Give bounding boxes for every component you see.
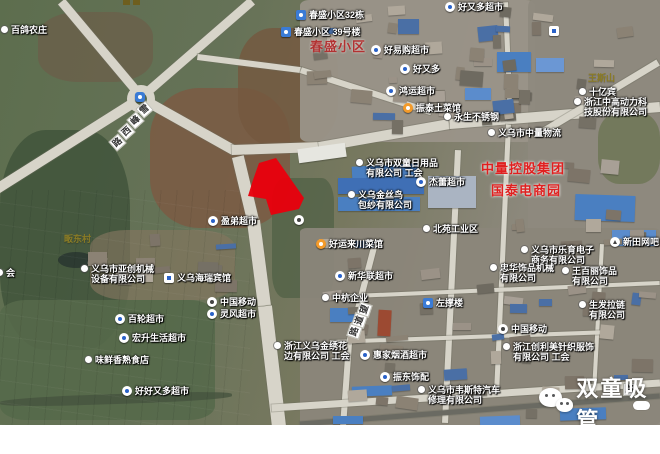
building-icon <box>281 27 291 37</box>
map-poi-label: 生发拉链有限公司 <box>579 300 625 320</box>
poi-label-text: 浙江创利美针织服饰有限公司 工会 <box>513 342 594 362</box>
poi-dot-icon <box>490 264 497 271</box>
poi-label-text: 义乌市韦斯特汽车修理有限公司 <box>428 385 500 405</box>
poi-label-text: 味鲜香熟食店 <box>95 355 149 365</box>
poi-dot-icon <box>0 269 3 276</box>
poi-dot-icon <box>503 343 510 350</box>
map-poi-label: 义乌金丝鸟包纱有限公司 <box>348 190 412 210</box>
poi-label-text: 永生不锈钢 <box>454 112 499 122</box>
poi-label-text: 好易购超市 <box>384 45 429 55</box>
map-poi-label: 春盛小区 <box>310 42 366 52</box>
poi-label-text: 义乌海瑞宾馆 <box>177 273 231 283</box>
poi-label-text: 十亿宾 <box>589 87 616 97</box>
map-poi-label: 浙江中高动力科技股份有限公司 <box>574 97 647 117</box>
poi-label-text: 中国移动 <box>220 297 256 307</box>
poi-dot-icon <box>274 342 281 349</box>
poi-label-text: 浙江中高动力科技股份有限公司 <box>584 97 647 117</box>
map-poi-label: 浙江创利美针织服饰有限公司 工会 <box>503 342 594 362</box>
map-poi-label: 浙江义乌金绣花边有限公司 工会 <box>274 341 350 361</box>
clipped-village-label <box>133 0 140 5</box>
poi-dot-icon <box>579 301 586 308</box>
poi-label-text: 好好又多超市 <box>135 386 189 396</box>
poi-label-text: 新华联超市 <box>348 271 393 281</box>
poi-label-text: 义乌市乐育电子商务有限公司 <box>531 245 594 265</box>
map-poi-label: 味鲜香熟食店 <box>85 355 149 365</box>
transit-stop-icon <box>135 92 145 102</box>
map-poi-label: 鸿运超市 <box>386 86 435 96</box>
poi-label-text: 宏升生活超市 <box>132 333 186 343</box>
poi-label-text: 百轮超市 <box>128 314 164 324</box>
poi-label-text: 好又多超市 <box>458 2 503 12</box>
poi-dot-icon <box>562 267 569 274</box>
shop-icon <box>335 271 345 281</box>
map-poi-label: 盈弟超市 <box>208 216 257 226</box>
map-poi-label: 百鸽农庄 <box>1 25 47 35</box>
map-poi-label: 好运来川菜馆 <box>316 239 383 249</box>
shop-icon <box>115 314 125 324</box>
poi-label-text: 春盛小区 39号楼 <box>294 27 361 37</box>
map-poi-label: 春盛小区32栋 <box>296 10 364 20</box>
netbar-icon <box>610 237 620 247</box>
map-poi-label: 春盛小区 39号楼 <box>281 27 361 37</box>
watermark-text: 双童吸管 <box>576 371 660 425</box>
poi-dot-icon <box>348 191 355 198</box>
poi-label-text: 会 <box>6 268 15 278</box>
restaurant-icon <box>316 239 326 249</box>
clipped-village-label <box>123 0 130 5</box>
poi-label-text: 义乌市双童日用品有限公司 工会 <box>366 158 438 178</box>
poi-label-text: 浙江义乌金绣花边有限公司 工会 <box>284 341 350 361</box>
poi-label-text: 国泰电商园 <box>491 186 561 196</box>
poi-label-text: 义乌市亚创机械设备有限公司 <box>91 264 154 284</box>
poi-dot-icon <box>579 88 586 95</box>
map-poi-label: 王百丽饰品有限公司 <box>562 266 617 286</box>
map-poi-label: 国泰电商园 <box>491 186 561 196</box>
article-screenshot: 百鸽农庄春盛小区32栋春盛小区 39号楼春盛小区好又多超市好易购超市好又多鸿运超… <box>0 0 660 454</box>
map-poi-label: 灵风超市 <box>207 309 256 319</box>
red-plot-polygon <box>248 158 304 215</box>
poi-dot-icon <box>356 159 363 166</box>
building-icon <box>423 298 433 308</box>
map-poi-label: 杰蕾超市 <box>416 177 465 187</box>
poi-label-text: 畈东村 <box>64 234 91 244</box>
poi-label-text: 好运来川菜馆 <box>329 239 383 249</box>
poi-label-text: 中量控股集团 <box>481 164 565 174</box>
map-poi-label: 北苑工业区 <box>423 224 478 234</box>
poi-dot-icon <box>85 356 92 363</box>
shop-icon <box>122 386 132 396</box>
poi-label-text: 春盛小区32栋 <box>309 10 364 20</box>
poi-dot-icon <box>521 246 528 253</box>
map-poi-label: 十亿宾 <box>579 87 616 97</box>
poi-dot-icon <box>1 26 8 33</box>
shop-icon <box>119 333 129 343</box>
map-poi-label: 畈东村 <box>64 234 91 244</box>
map-poi-label: 义乌市亚创机械设备有限公司 <box>81 264 154 284</box>
shop-icon <box>386 86 396 96</box>
map-poi-label: 新华联超市 <box>335 271 393 281</box>
caption-band: “双童”的二期生产地块（红色区域） <box>0 425 660 454</box>
poi-label-text: 左撑楼 <box>436 298 463 308</box>
poi-square-icon <box>549 26 559 36</box>
map-poi-label: 惠家烟酒超市 <box>360 350 427 360</box>
poi-label-text: 王斯山 <box>588 73 615 83</box>
shop-icon <box>416 177 426 187</box>
poi-circle-icon <box>294 215 304 225</box>
poi-label-text: 义乌金丝鸟包纱有限公司 <box>358 190 412 210</box>
shop-icon <box>445 2 455 12</box>
map-poi-label: 义乌市乐育电子商务有限公司 <box>521 245 594 265</box>
building-icon <box>296 10 306 20</box>
map-poi-label: 百轮超市 <box>115 314 164 324</box>
poi-label-text: 惠家烟酒超市 <box>373 350 427 360</box>
poi-dot-icon <box>423 225 430 232</box>
poi-dot-icon <box>81 265 88 272</box>
restaurant-icon <box>403 103 413 113</box>
poi-label-text: 春盛小区 <box>310 42 366 52</box>
poi-dot-icon <box>488 129 495 136</box>
poi-dot-icon <box>207 297 217 307</box>
poi-label-text: 灵风超市 <box>220 309 256 319</box>
poi-dot-icon <box>322 294 329 301</box>
shop-icon <box>380 372 390 382</box>
watermark: 双童吸管 <box>539 371 660 425</box>
map-poi-label: 义乌海瑞宾馆 <box>164 273 231 283</box>
map-poi-label: 中国移动 <box>207 297 256 307</box>
poi-label-text: 义乌市中量物流 <box>498 128 561 138</box>
map-poi-label: 新田网吧 <box>610 237 659 247</box>
map-poi-label: 永生不锈钢 <box>444 112 499 122</box>
poi-label-text: 中国移动 <box>511 324 547 334</box>
map-poi-label: 王斯山 <box>588 73 615 83</box>
shop-icon <box>208 216 218 226</box>
poi-dot-icon <box>498 324 508 334</box>
poi-label-text: 盈弟超市 <box>221 216 257 226</box>
poi-label-text: 鸿运超市 <box>399 86 435 96</box>
poi-dot-icon <box>574 98 581 105</box>
map-poi-label: 中国移动 <box>498 324 547 334</box>
poi-label-text: 新田网吧 <box>623 237 659 247</box>
map-poi-label: 左撑楼 <box>423 298 463 308</box>
poi-label-text: 振东饰配 <box>393 372 429 382</box>
poi-label-text: 王百丽饰品有限公司 <box>572 266 617 286</box>
map-poi-label: 好又多超市 <box>445 2 503 12</box>
map-poi-label: 宏升生活超市 <box>119 333 186 343</box>
map-poi-label: 义乌市中量物流 <box>488 128 561 138</box>
shop-icon <box>371 45 381 55</box>
wechat-icon <box>539 388 570 418</box>
poi-label-text: 生发拉链有限公司 <box>589 300 625 320</box>
map-poi-label: 好又多 <box>400 64 440 74</box>
poi-label-text: 忠华饰品机械有限公司 <box>500 263 554 283</box>
shop-icon <box>400 64 410 74</box>
map-poi-label: 好易购超市 <box>371 45 429 55</box>
map-poi-label: 中量控股集团 <box>481 164 565 174</box>
hotel-icon <box>164 273 174 283</box>
poi-label-text: 北苑工业区 <box>433 224 478 234</box>
satellite-map: 百鸽农庄春盛小区32栋春盛小区 39号楼春盛小区好又多超市好易购超市好又多鸿运超… <box>0 0 660 425</box>
poi-dot-icon <box>444 113 451 120</box>
map-poi-label: 会 <box>0 268 15 278</box>
map-poi-label: 义乌市双童日用品有限公司 工会 <box>356 158 438 178</box>
poi-label-text: 好又多 <box>413 64 440 74</box>
poi-label-text: 百鸽农庄 <box>11 25 47 35</box>
map-poi-label: 振东饰配 <box>380 372 429 382</box>
poi-dot-icon <box>418 386 425 393</box>
shop-icon <box>207 309 217 319</box>
shop-icon <box>360 350 370 360</box>
poi-label-text: 杰蕾超市 <box>429 177 465 187</box>
map-poi-label: 好好又多超市 <box>122 386 189 396</box>
map-poi-label: 义乌市韦斯特汽车修理有限公司 <box>418 385 500 405</box>
map-poi-label: 忠华饰品机械有限公司 <box>490 263 554 283</box>
